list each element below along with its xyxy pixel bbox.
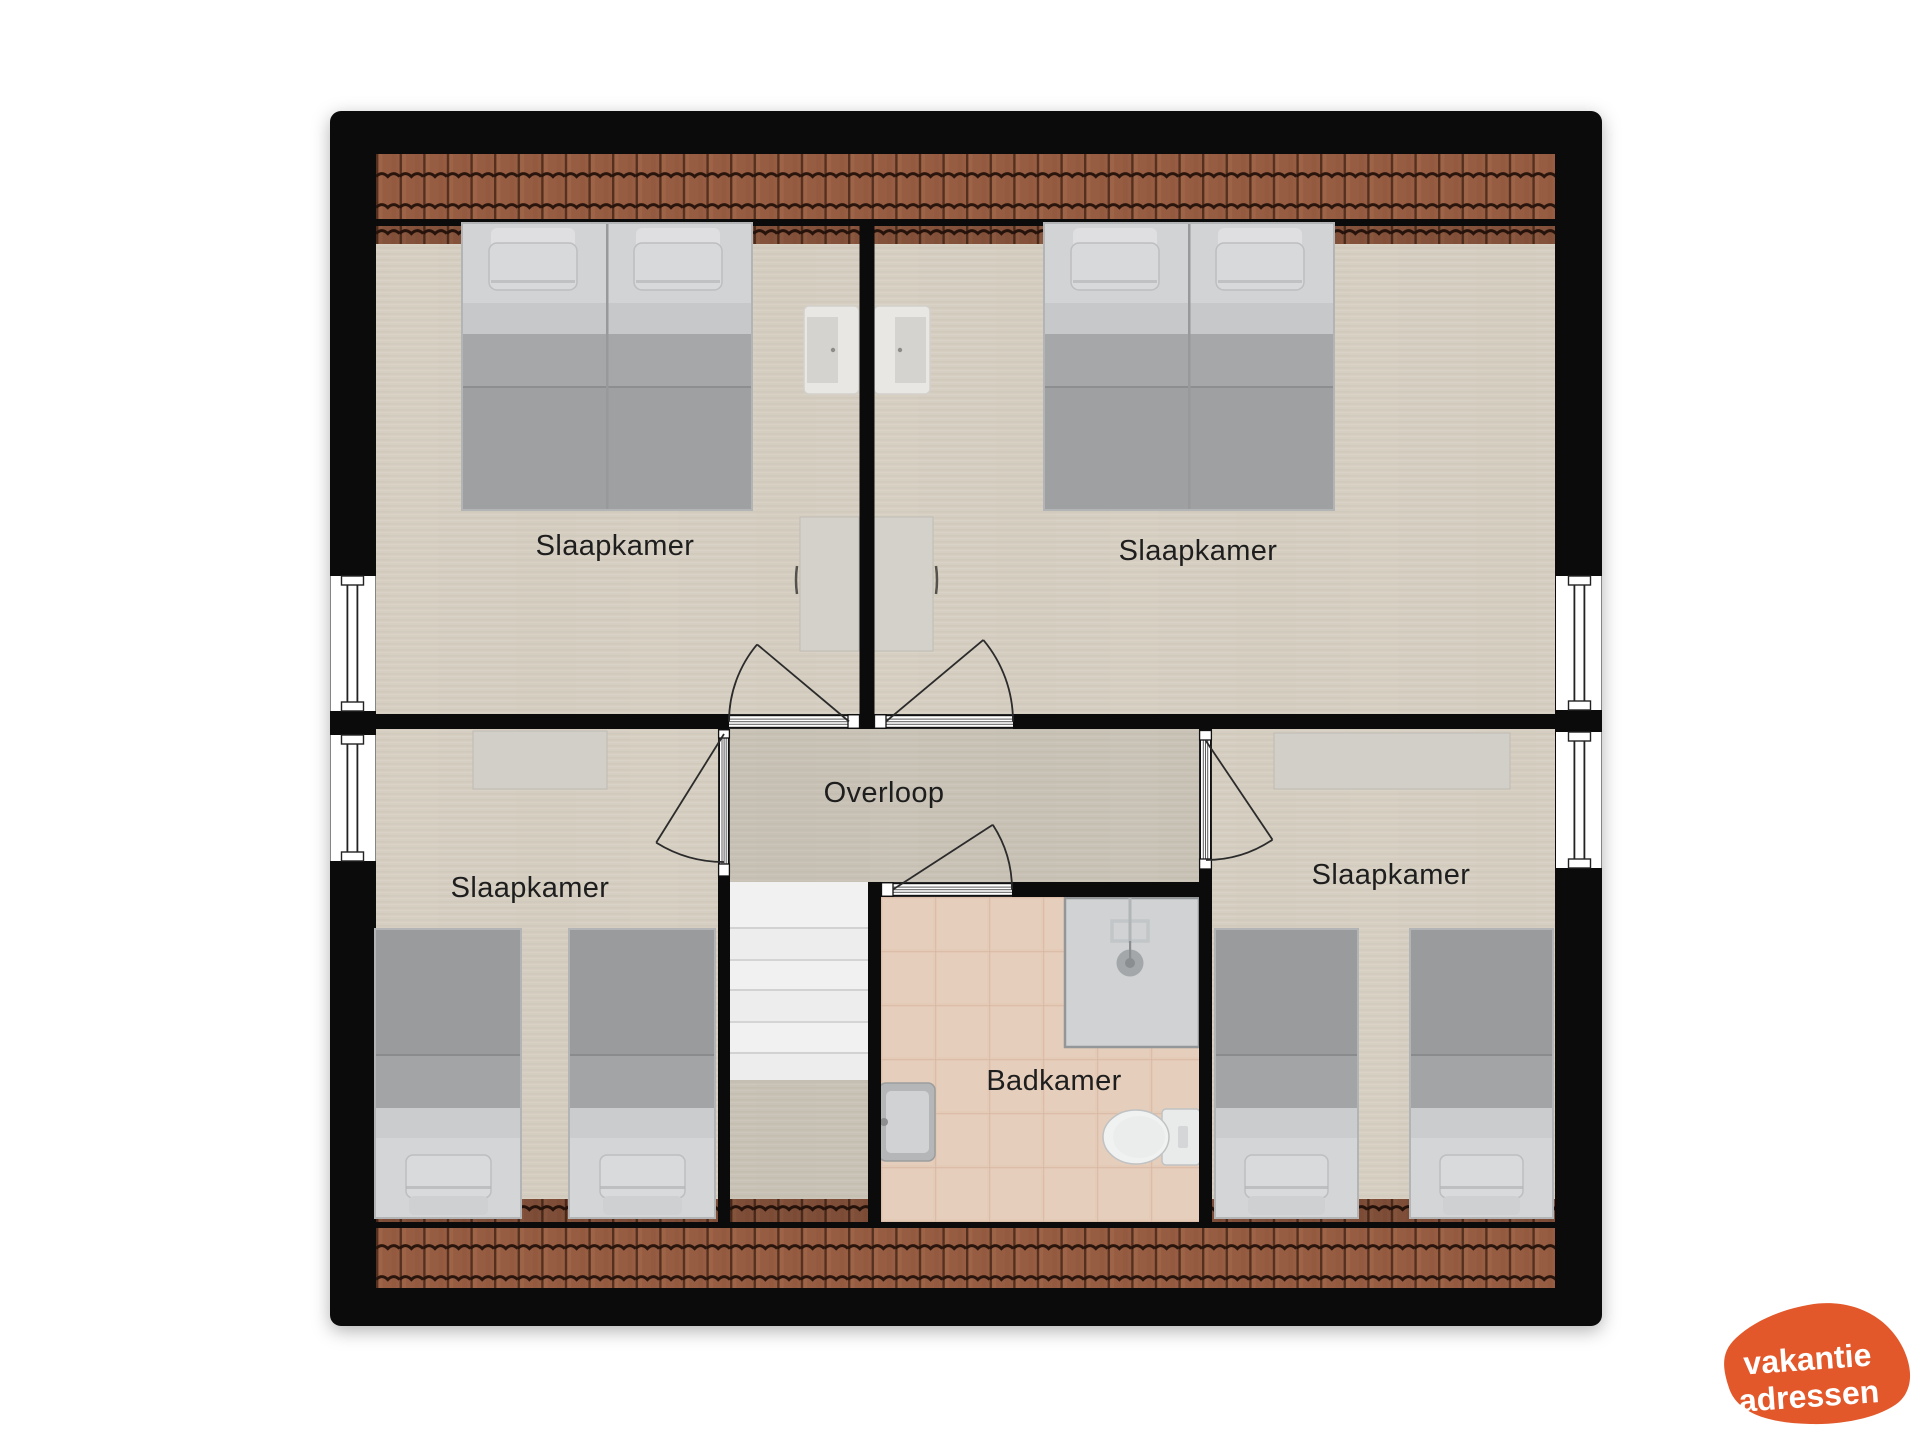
svg-text:Overloop: Overloop	[824, 777, 945, 809]
svg-text:Badkamer: Badkamer	[986, 1065, 1121, 1097]
svg-text:Slaapkamer: Slaapkamer	[536, 530, 695, 562]
svg-text:Slaapkamer: Slaapkamer	[1119, 535, 1278, 567]
svg-text:Slaapkamer: Slaapkamer	[1312, 859, 1471, 891]
svg-text:Slaapkamer: Slaapkamer	[451, 872, 610, 904]
